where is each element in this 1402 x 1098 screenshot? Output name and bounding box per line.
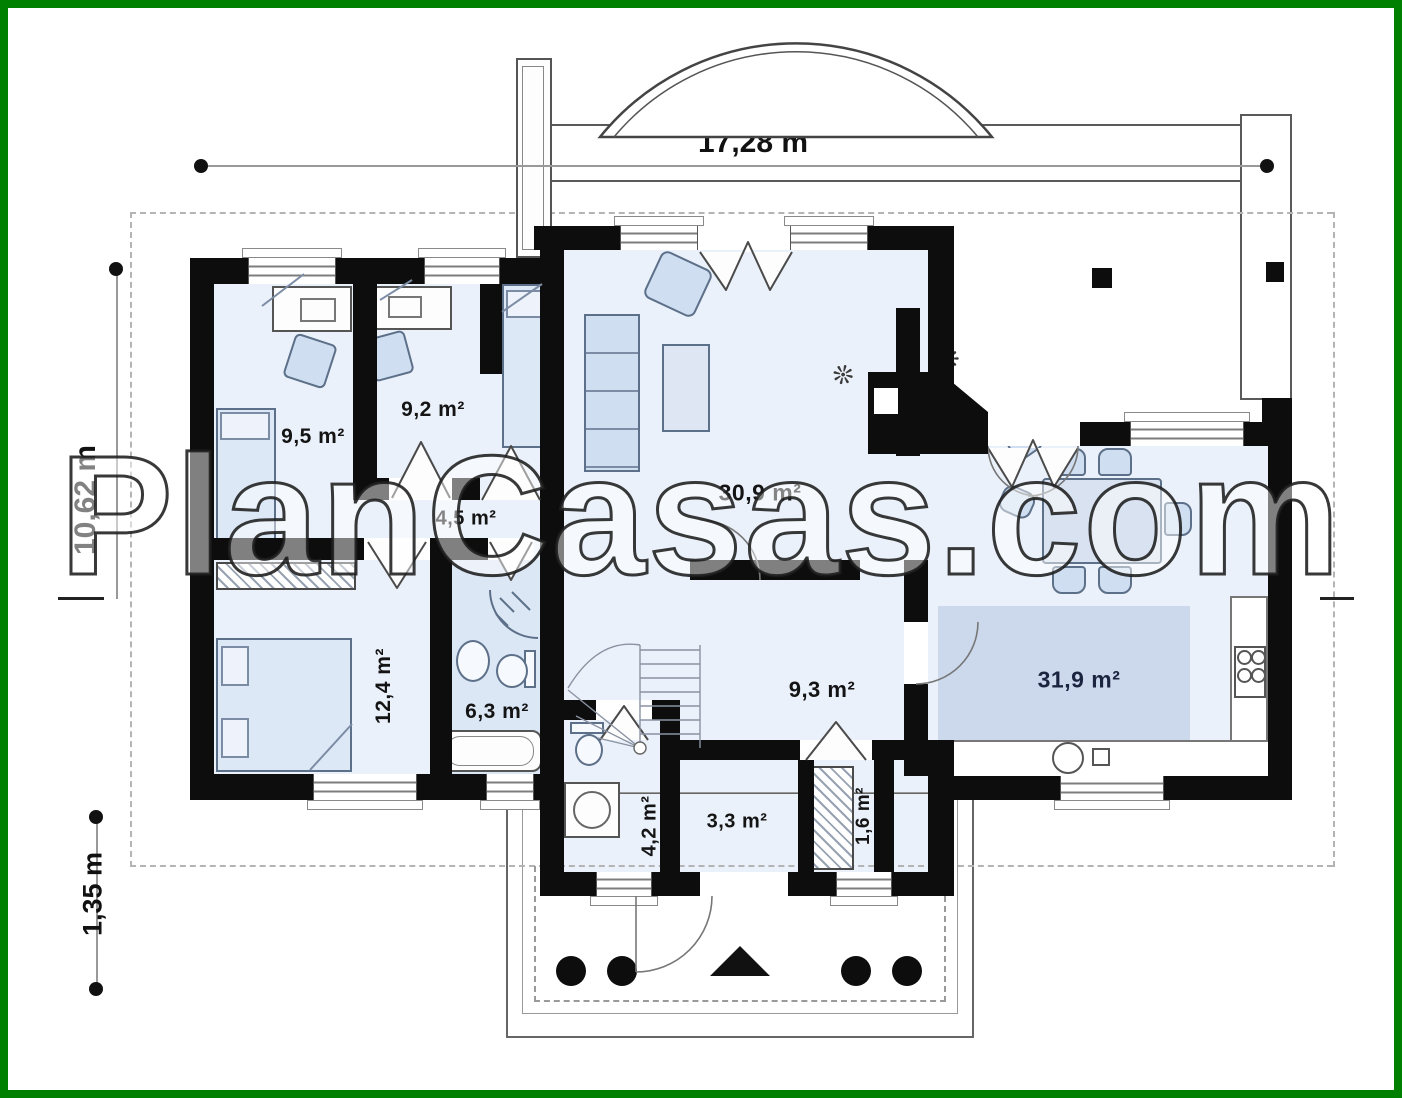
room-label-wc: 4,2 m² xyxy=(639,796,662,857)
entrance-arrow xyxy=(710,946,770,976)
watermark: PlanCasas.com xyxy=(60,418,1343,614)
arched-bay-outer xyxy=(600,43,992,137)
room-label-hall: 9,3 m² xyxy=(789,677,856,703)
floor-plan-page: { "watermark": { "text": "PlanCasas.com"… xyxy=(0,0,1402,1098)
room-label-bathroom: 6,3 m² xyxy=(465,700,529,724)
room-label-bedroom-bottom: 12,4 m² xyxy=(372,648,396,724)
room-label-entry: 3,3 m² xyxy=(707,811,768,834)
floor-plan: 17,28 m 10,62 m 1,35 m xyxy=(0,0,1402,1098)
room-label-closet: 1,6 m² xyxy=(853,787,875,845)
room-label-kitchen: 31,9 m² xyxy=(1038,667,1121,694)
